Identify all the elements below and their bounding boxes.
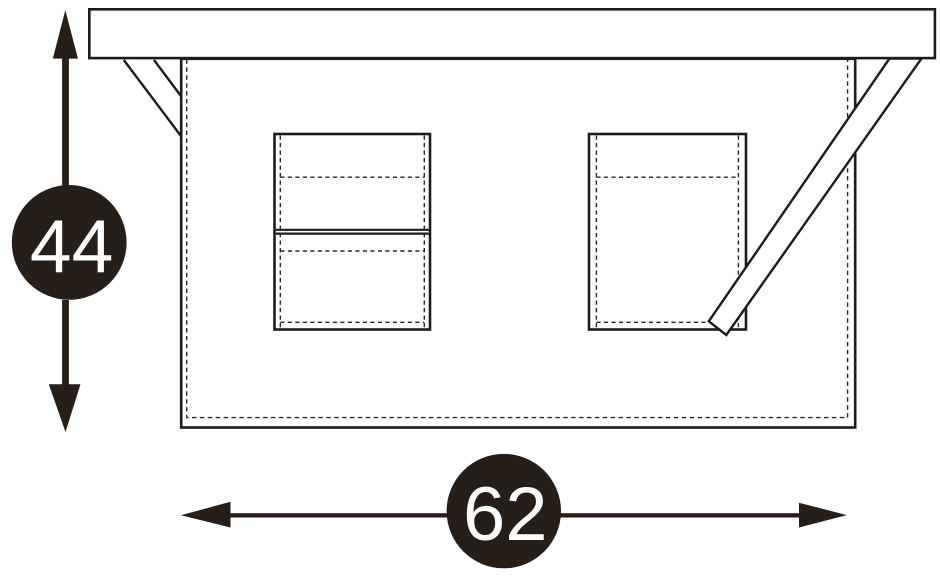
svg-text:62: 62 xyxy=(463,472,548,557)
svg-text:44: 44 xyxy=(30,204,113,288)
